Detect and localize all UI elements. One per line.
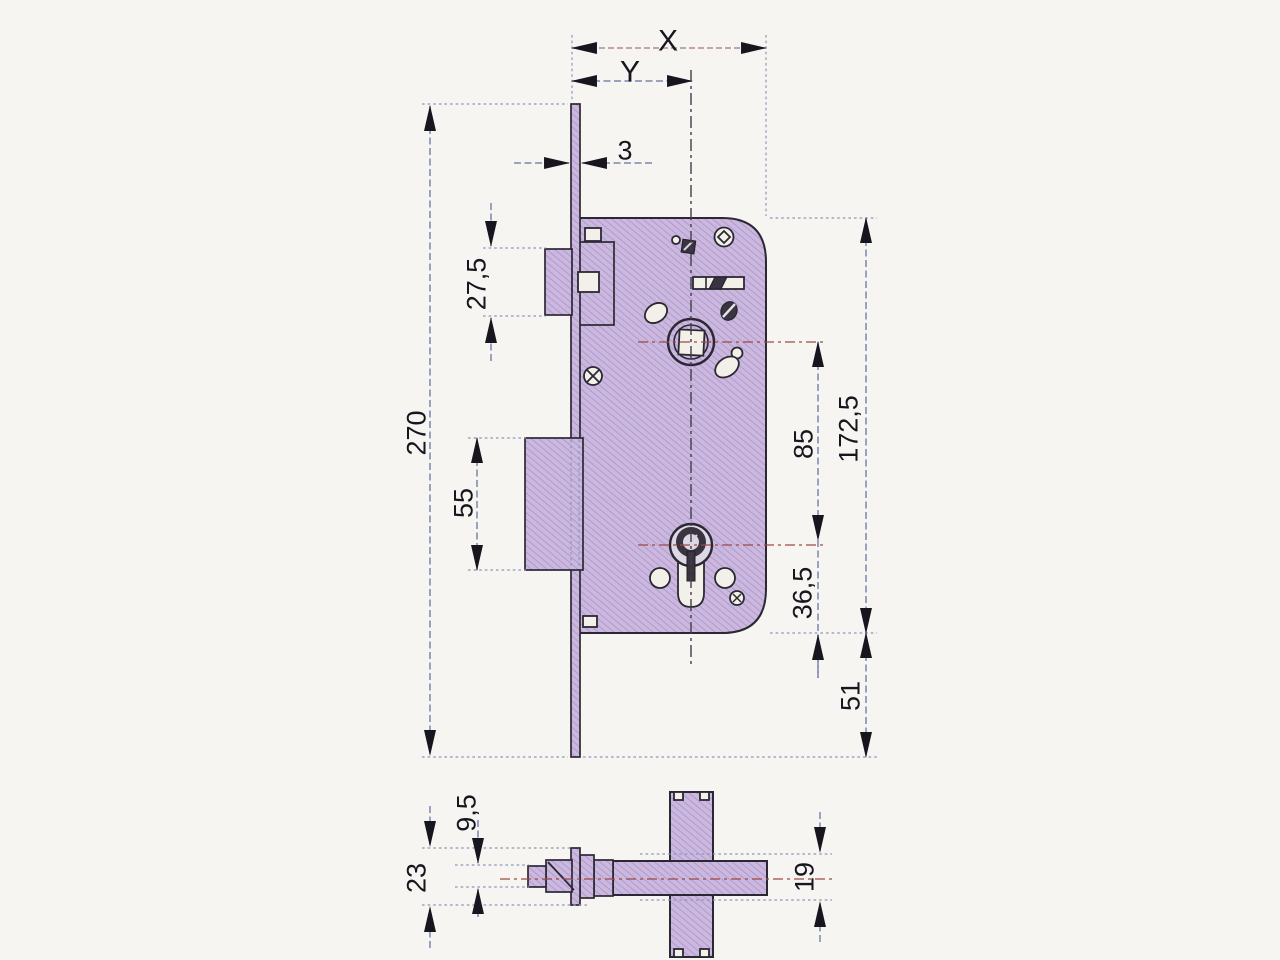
reversing-slot [693, 277, 744, 289]
drawing-canvas: X Y 3 270 27,5 55 85 172,5 36,5 51 9,5 2… [0, 0, 1280, 960]
faceplate [571, 104, 580, 757]
phillips-screw-icon [584, 367, 602, 385]
dim-label-faceplate-length: 270 [401, 410, 431, 455]
dim-label-case-depth: 19 [789, 862, 819, 892]
deadbolt [525, 438, 583, 570]
latch-notch [578, 272, 599, 292]
case-slot-bottom-left [583, 616, 597, 627]
faceplate-boss [580, 855, 594, 898]
dim-label-y: Y [620, 56, 640, 89]
screw-top-right-icon [715, 228, 734, 247]
lock-technical-drawing: X Y 3 270 27,5 55 85 172,5 36,5 51 9,5 2… [0, 0, 1280, 960]
housing-notch [674, 792, 683, 800]
latch-guide-block [594, 860, 613, 896]
housing-notch [700, 949, 709, 957]
case-side-bar [613, 861, 767, 895]
housing-notch [700, 792, 709, 800]
latch-side-tip [528, 866, 546, 887]
latch-bolt-head [545, 249, 572, 315]
stop-screw-dark-icon [681, 239, 696, 254]
dim-label-follower-to-cylinder: 85 [788, 429, 818, 459]
housing-notch [674, 949, 683, 957]
pin-hole-small [672, 236, 680, 244]
dim-label-latch-height: 27,5 [461, 258, 491, 311]
fixing-hole-right [715, 568, 735, 588]
dim-label-case-to-plate-end: 51 [835, 681, 865, 711]
dim-label-x: X [658, 25, 678, 58]
dim-label-faceplate-thickness: 3 [617, 135, 632, 165]
dim-label-case-height: 172,5 [833, 395, 863, 463]
dim-label-plate-width: 23 [401, 863, 431, 893]
dim-label-cylinder-to-bottom: 36,5 [787, 567, 817, 620]
dim-label-latch-depth: 9,5 [451, 794, 481, 832]
small-screw-bottom-icon [730, 591, 744, 605]
fixing-hole-left [650, 568, 670, 588]
case-slot-top-left [585, 228, 601, 241]
dim-label-deadbolt-height: 55 [448, 488, 478, 518]
